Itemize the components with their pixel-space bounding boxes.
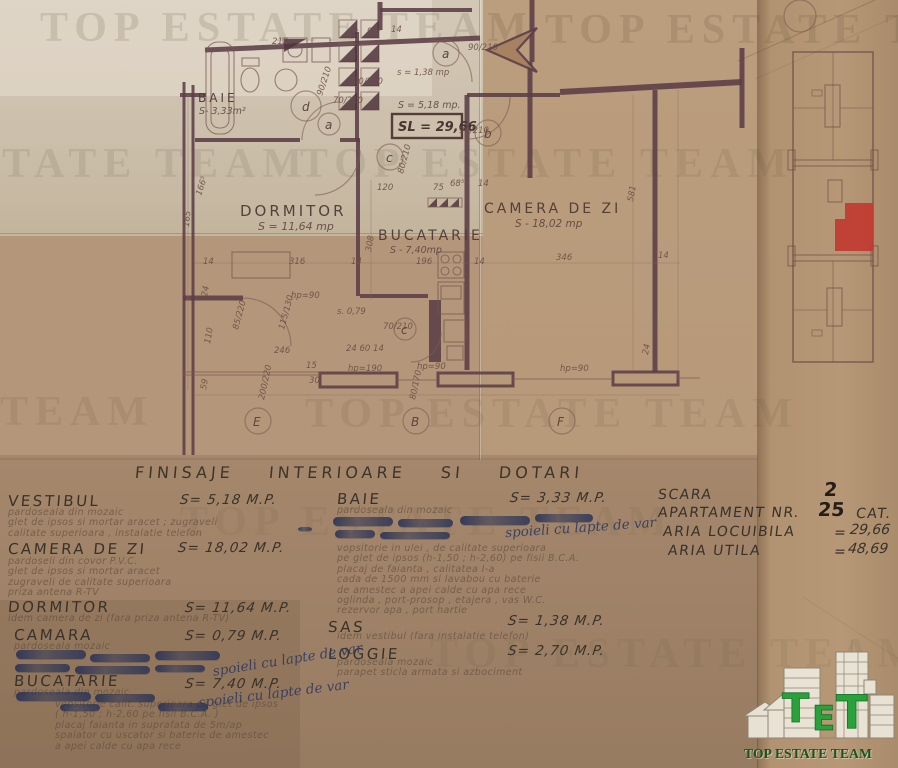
logo-letter-t2: T xyxy=(836,685,868,739)
floorplan-drawing: SL = 29,66 S = 5,18 mp. BAIE S- 3,33m² D… xyxy=(0,0,898,470)
ink-scribble xyxy=(155,651,220,660)
dim: 80/170 xyxy=(408,369,424,400)
cabinet-icon xyxy=(447,346,463,360)
dim: 90/210 xyxy=(353,77,383,87)
dim: hp=190 xyxy=(348,364,382,374)
room-label-baie: BAIE xyxy=(198,91,238,105)
section-letter-F: F xyxy=(549,408,575,434)
room-area-value: S= 1,38 M.P. xyxy=(507,613,606,629)
section-letter-E: E xyxy=(245,408,271,434)
parapet xyxy=(320,373,397,387)
ink-scribble xyxy=(90,654,150,662)
room-area-value: S= 2,70 M.P. xyxy=(507,643,606,659)
dim: 90/210 xyxy=(315,65,334,97)
ink-scribble xyxy=(16,692,91,701)
ink-scribble xyxy=(298,527,312,531)
furniture-icon xyxy=(232,252,290,278)
dim: 196 xyxy=(416,257,433,267)
room-spec-lines: pardoseli din covor P.V.C.glet de ipsos … xyxy=(8,557,171,599)
dim: 110 xyxy=(203,327,216,345)
dim: s. 0,79 xyxy=(337,307,366,317)
room-label-bucatarie: BUCATARIE xyxy=(378,228,483,244)
dim: 165 xyxy=(182,210,193,227)
dim: 14 xyxy=(351,257,362,267)
parapet xyxy=(438,373,513,386)
ink-scribble xyxy=(398,519,453,527)
dim: 166⁵ xyxy=(194,175,210,197)
dim: 115/130 xyxy=(277,294,296,331)
scara-value: 2 xyxy=(823,479,839,501)
logo-letter-e: E xyxy=(812,699,835,739)
aria-locuibila-label: ARIA LOCUIBILA xyxy=(662,524,796,540)
dim: 93⁵ xyxy=(367,27,382,37)
dim: 85/220 xyxy=(231,299,248,330)
door-arc xyxy=(315,150,360,195)
logo-caption: TOP ESTATE TEAM xyxy=(744,746,872,762)
toilet-icon xyxy=(241,58,259,92)
room-spec-lines: pardoseala mozaicparapet sticla armata s… xyxy=(337,658,523,679)
svg-text:d: d xyxy=(302,100,310,114)
dim: 75 xyxy=(348,29,359,39)
equals-sign: = xyxy=(833,525,847,541)
aria-locuibila-value: 29,66 xyxy=(849,522,891,538)
door-letter-a2: a xyxy=(433,40,459,66)
dim: hp=90 xyxy=(417,362,446,372)
section-letter-B: B xyxy=(403,408,429,434)
apartament-value: 25 xyxy=(817,499,846,521)
svg-text:E: E xyxy=(253,415,261,429)
dim: 120 xyxy=(377,183,393,193)
room-spec-lines: idem vestibul (fara instalatie telefon) xyxy=(337,632,529,642)
dim: 24 xyxy=(200,285,212,297)
dim: 70/210 xyxy=(383,322,413,332)
dim: 14 xyxy=(203,257,214,267)
room-spec-lines: pardoseala din mozaicglet de ipsos si mo… xyxy=(8,508,218,539)
dim: 24 xyxy=(641,343,653,355)
ink-scribble xyxy=(15,664,70,672)
dim: 68⁵ xyxy=(450,179,465,189)
bathtub-icon xyxy=(206,42,234,134)
dim: 30 xyxy=(309,376,320,386)
dim: 14 xyxy=(658,251,669,261)
dim: 75 xyxy=(433,183,444,193)
dim: 316 xyxy=(289,257,306,267)
vestibul-area: S = 5,18 mp. xyxy=(398,100,461,111)
aria-utila-value: 48,69 xyxy=(847,541,889,557)
dim: 59 xyxy=(199,378,211,390)
room-area-value: S= 0,79 M.P. xyxy=(184,628,283,644)
room-label-camera-de-zi: CAMERA DE ZI xyxy=(484,201,621,217)
room-area-value: S= 3,33 M.P. xyxy=(509,490,608,506)
wall-pier xyxy=(429,300,441,362)
stamp-circle xyxy=(784,0,816,32)
svg-text:a: a xyxy=(325,118,332,132)
dim: 70/210 xyxy=(333,96,363,106)
dim: 14 xyxy=(391,25,402,35)
ink-scribble xyxy=(155,665,205,672)
door-letter-d: d xyxy=(291,91,321,121)
svg-text:F: F xyxy=(557,415,565,429)
dim: hp=90 xyxy=(560,364,589,374)
dim: 14 xyxy=(474,257,485,267)
cat-label: CAT. xyxy=(855,506,893,522)
svg-text:c: c xyxy=(386,151,393,165)
scara-label: SCARA xyxy=(657,487,713,503)
room-spec-lines: idem camera de zi (fara priza antena R-T… xyxy=(8,614,230,624)
finishes-title: FINISAJE INTERIOARE SI DOTARI xyxy=(134,463,584,482)
dim: hp=90 xyxy=(291,291,320,301)
room-area-value: S= 18,02 M.P. xyxy=(177,540,286,556)
apartament-label: APARTAMENT NR. xyxy=(657,505,801,521)
shelf-icon xyxy=(312,38,330,62)
room-area-camera-de-zi: S - 18,02 mp xyxy=(515,218,583,230)
ink-scribble xyxy=(95,694,155,702)
wall xyxy=(560,82,742,92)
dim: 346 xyxy=(556,253,573,263)
dim: 246 xyxy=(274,346,291,356)
svg-text:a: a xyxy=(442,47,449,61)
fridge-icon xyxy=(444,320,466,342)
ink-scribble xyxy=(75,666,150,674)
dim: 90/210 xyxy=(459,126,489,136)
dim: 308 xyxy=(364,234,377,252)
top-estate-team-logo: T E T xyxy=(740,640,898,745)
ink-scribble xyxy=(335,530,375,538)
dim: 90/210 xyxy=(468,43,498,53)
room-area-baie: S- 3,33m² xyxy=(199,106,246,117)
site-key-plan xyxy=(784,0,878,362)
ink-scribble xyxy=(16,650,86,659)
scanned-floorplan-document: TOP ESTATE TEAM TOP ESTATE TEAM TOP ESTA… xyxy=(0,0,898,768)
dim: s = 1,38 mp xyxy=(397,68,449,78)
dim: 14 xyxy=(478,179,489,189)
ink-scribble xyxy=(380,532,450,539)
door-letter-a: a xyxy=(318,113,340,135)
ink-scribble xyxy=(333,517,393,526)
room-area-bucatarie: S - 7,40mp xyxy=(390,245,442,256)
room-label-dormitor: DORMITOR xyxy=(240,202,347,220)
svg-text:B: B xyxy=(411,415,419,429)
room-area-dormitor: S = 11,64 mp xyxy=(258,220,334,233)
logo-letter-t1: T xyxy=(782,686,810,732)
ink-scribble xyxy=(60,704,100,711)
aria-utila-label: ARIA UTILA xyxy=(667,543,762,559)
dim: 581 xyxy=(626,185,639,203)
equals-sign: = xyxy=(833,544,847,560)
room-spec-lines: pardoseala din mozaic xyxy=(337,506,453,516)
highlighted-apartment-unit xyxy=(835,203,873,251)
dim: 24 60 14 xyxy=(346,344,384,354)
room-spec-lines: vopsitorie in ulei , de calitate superio… xyxy=(337,544,579,617)
dim: 15 xyxy=(306,361,317,371)
kitchen-sink-icon xyxy=(438,282,464,314)
parapet xyxy=(613,372,678,385)
washbasin-icon xyxy=(275,69,297,91)
wall-hatch-strip xyxy=(428,198,462,207)
dim: 212 xyxy=(272,37,288,47)
room-area-value: S= 5,18 M.P. xyxy=(179,492,278,508)
